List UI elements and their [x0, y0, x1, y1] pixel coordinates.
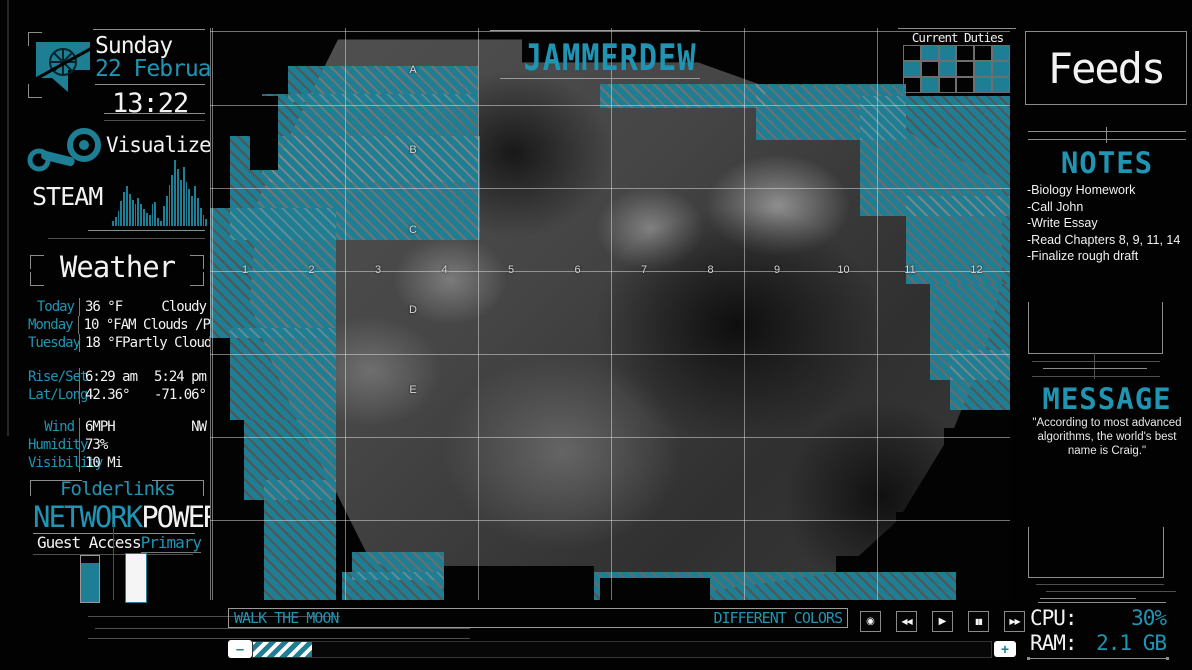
- network-level-fill: [81, 563, 99, 602]
- visualizer-bar: [120, 201, 122, 226]
- duty-cell: [921, 45, 939, 61]
- visualizer-bar: [143, 209, 145, 226]
- bracket: [1106, 127, 1107, 143]
- message-text: "According to most advanced algorithms, …: [1028, 416, 1186, 458]
- condition-value-1: 6MPH: [80, 418, 115, 436]
- notes-title: NOTES: [1028, 146, 1186, 180]
- astro-label: Rise/Set: [28, 368, 80, 386]
- visualizer-bar: [157, 218, 159, 226]
- visualizer-bar: [154, 202, 156, 226]
- divider: [88, 230, 205, 231]
- visualizer-bar: [163, 206, 165, 226]
- duty-cell: [921, 77, 939, 93]
- bracket: [1046, 591, 1176, 592]
- visualizer-bar: [115, 217, 117, 226]
- duty-cell: [992, 61, 1010, 77]
- condition-label: Visibility: [28, 454, 80, 472]
- bracket: [1163, 527, 1164, 577]
- network-power-title: NETWORKPOWER: [33, 500, 219, 534]
- map-col-label: 1: [242, 264, 248, 276]
- map-col-label: 3: [375, 264, 381, 276]
- forecast-day: Monday: [28, 316, 79, 334]
- compass-map-icon[interactable]: [34, 40, 92, 94]
- weather-astro: Rise/Set 6:29 am 5:24 pm Lat/Long 42.36°…: [28, 368, 206, 404]
- ram-row: RAM: 2.1 GB: [1030, 631, 1166, 656]
- bracket: [1028, 577, 1164, 578]
- weather-forecast: Today 36 °F Cloudy Monday 10 °F AM Cloud…: [28, 298, 206, 352]
- clock-time: 13:22: [112, 88, 188, 119]
- visualizer-bar: [152, 204, 154, 226]
- fast-forward-icon: ▶▶: [1009, 617, 1019, 626]
- bracket: [1040, 598, 1136, 599]
- visualizer-bar: [166, 196, 168, 226]
- astro-label: Lat/Long: [28, 386, 80, 404]
- map-col-label: 7: [641, 264, 647, 276]
- visualizer-bar: [123, 192, 125, 226]
- visualizer-bar: [118, 211, 120, 226]
- ram-label: RAM:: [1030, 631, 1077, 656]
- power-level-fill: [126, 554, 146, 602]
- divider: [95, 628, 470, 629]
- screen-edge-line: [7, 0, 9, 436]
- forecast-day: Today: [28, 298, 80, 316]
- map-col-label: 10: [837, 264, 849, 276]
- network-title[interactable]: NETWORK: [33, 500, 141, 534]
- visualizer-bar: [137, 198, 139, 226]
- duty-cell: [921, 61, 939, 77]
- divider: [95, 84, 205, 85]
- map-row-label: B: [409, 144, 416, 156]
- duty-cell: [992, 45, 1010, 61]
- note-item: -Write Essay: [1027, 215, 1189, 232]
- bracket: [1032, 361, 1160, 362]
- note-item: -Biology Homework: [1027, 182, 1189, 199]
- duty-cell: [974, 61, 992, 77]
- map-col-label: 5: [508, 264, 514, 276]
- bracket: [1028, 139, 1186, 140]
- duty-cell: [974, 45, 992, 61]
- visualizer-bar: [180, 180, 182, 226]
- duty-cell: [939, 61, 957, 77]
- duty-cell: [939, 77, 957, 93]
- astro-row: Rise/Set 6:29 am 5:24 pm: [28, 368, 206, 386]
- forecast-desc: Partly Cloudy: [122, 334, 219, 352]
- condition-row: Visibility 10 Mi: [28, 454, 206, 472]
- map-col-label: 9: [774, 264, 780, 276]
- map-row-label: E: [409, 384, 416, 396]
- visualizer-bar: [183, 167, 185, 226]
- duty-cell: [974, 77, 992, 93]
- current-duties-title: Current Duties: [905, 30, 1010, 45]
- divider: [1038, 602, 1166, 603]
- duty-cell: [956, 61, 974, 77]
- visualizer-bar: [146, 213, 148, 226]
- network-power-subtitles: Guest AccessPrimary: [37, 533, 201, 552]
- record-icon: ◉: [866, 616, 875, 627]
- message-title: MESSAGE: [1028, 382, 1186, 416]
- visualizer-bar: [126, 186, 128, 226]
- forecast-row: Today 36 °F Cloudy: [28, 298, 206, 316]
- map-row-label: A: [409, 64, 416, 76]
- visualizer-bar: [174, 160, 176, 226]
- duty-cell: [903, 61, 921, 77]
- fast-forward-button[interactable]: ▶▶: [1004, 611, 1025, 632]
- map-col-label: 2: [308, 264, 314, 276]
- condition-value-1: 10 Mi: [80, 454, 122, 472]
- power-subtitle: Primary: [141, 533, 201, 553]
- visualizer-bar: [186, 182, 188, 226]
- map-col-label: 12: [970, 264, 982, 276]
- cpu-value: 30%: [1131, 606, 1166, 631]
- divider: [104, 113, 205, 114]
- condition-value-2: NW: [115, 418, 206, 436]
- visualizer-bar: [203, 215, 205, 226]
- map-title: JAMMERDEW: [518, 36, 702, 79]
- forecast-temp: 18 °F: [80, 334, 122, 352]
- visualizer-bar: [194, 186, 196, 226]
- bracket: [500, 78, 700, 79]
- bracket: [1028, 353, 1163, 354]
- visualizer-bar: [200, 208, 202, 226]
- astro-value-1: 42.36°: [80, 386, 130, 404]
- note-item: -Call John: [1027, 199, 1189, 216]
- duty-cell: [903, 45, 921, 61]
- steam-icon[interactable]: [27, 128, 103, 178]
- visualizer-bar: [149, 215, 151, 226]
- divider: [104, 120, 205, 121]
- bracket: [28, 84, 42, 98]
- weather-title: Weather: [30, 250, 205, 284]
- notes-list: -Biology Homework-Call John-Write Essay-…: [1027, 182, 1189, 265]
- visualizer-bar: [160, 221, 162, 226]
- steam-label[interactable]: STEAM: [32, 182, 102, 211]
- map-grid-overlay: [210, 28, 1010, 600]
- bracket: [1032, 376, 1160, 377]
- network-level-bar: [80, 555, 100, 603]
- bracket: [490, 30, 700, 31]
- bracket: [1162, 302, 1163, 354]
- astro-value-2: 5:24 pm: [137, 368, 206, 386]
- astro-row: Lat/Long 42.36° -71.06°: [28, 386, 206, 404]
- map-col-label: 6: [574, 264, 580, 276]
- forecast-temp: 36 °F: [80, 298, 122, 316]
- note-item: -Read Chapters 8, 9, 11, 14: [1027, 232, 1189, 249]
- visualizer-bar: [132, 200, 134, 226]
- volume-down-button[interactable]: –: [228, 640, 252, 658]
- power-title[interactable]: POWER: [141, 500, 218, 534]
- note-item: -Finalize rough draft: [1027, 248, 1189, 265]
- rewind-icon: ◀◀: [901, 617, 911, 626]
- network-subtitle: Guest Access: [37, 533, 141, 552]
- cpu-row: CPU: 30%: [1030, 606, 1166, 631]
- map-row-label: D: [409, 304, 417, 316]
- visualizer-title: Visualizer: [106, 133, 222, 157]
- folderlinks-title[interactable]: Folderlinks: [30, 478, 205, 500]
- play-icon: ▶: [939, 616, 947, 627]
- visualizer-bar: [129, 194, 131, 226]
- forecast-temp: 10 °F: [79, 316, 121, 334]
- bracket: [1043, 368, 1147, 369]
- ram-value: 2.1 GB: [1096, 631, 1166, 656]
- weather-conditions: Wind 6MPH NW Humidity 73% Visibility 10 …: [28, 418, 206, 472]
- visualizer-bar: [140, 204, 142, 226]
- visualizer-bar: [205, 219, 207, 226]
- condition-label: Wind: [28, 418, 80, 436]
- feeds-title: Feeds: [1048, 44, 1164, 93]
- power-level-bar: [125, 553, 147, 603]
- audio-visualizer: [112, 160, 207, 226]
- map-col-label: 4: [441, 264, 447, 276]
- rewind-button[interactable]: ◀◀: [896, 611, 917, 632]
- plus-icon: +: [1001, 641, 1009, 657]
- minus-icon: –: [236, 641, 244, 658]
- divider: [1028, 658, 1168, 659]
- forecast-desc: Cloudy: [122, 298, 206, 316]
- pause-icon: ▮▮: [975, 617, 982, 626]
- visualizer-bar: [188, 189, 190, 226]
- visualizer-bar: [197, 198, 199, 226]
- duty-cell: [956, 77, 974, 93]
- cpu-label: CPU:: [1030, 606, 1077, 631]
- divider: [93, 29, 205, 30]
- bracket: [898, 28, 1016, 29]
- forecast-row: Monday 10 °F AM Clouds /PM Sun: [28, 316, 206, 334]
- map-area[interactable]: 123456789101112 ABCDE JAMMERDEW: [210, 28, 1010, 600]
- visualizer-bar: [171, 175, 173, 226]
- pause-button[interactable]: ▮▮: [968, 611, 989, 632]
- map-col-label: 8: [707, 264, 713, 276]
- duty-cell: [992, 77, 1010, 93]
- bracket: [1028, 131, 1186, 132]
- progress-track[interactable]: [252, 641, 992, 658]
- map-col-label: 11: [904, 264, 915, 276]
- condition-value-1: 73%: [80, 436, 107, 454]
- duty-cell: [903, 77, 921, 93]
- visualizer-bar: [177, 169, 179, 226]
- condition-value-2: [122, 454, 206, 472]
- visualizer-bar: [169, 185, 171, 226]
- visualizer-bar: [135, 204, 137, 226]
- now-playing-bar[interactable]: WALK THE MOON DIFFERENT COLORS: [228, 608, 848, 628]
- duty-cell: [939, 45, 957, 61]
- bracket: [28, 32, 42, 46]
- feeds-panel[interactable]: Feeds: [1025, 31, 1187, 105]
- bracket: [1036, 584, 1164, 585]
- forecast-day: Tuesday: [28, 334, 80, 352]
- condition-row: Wind 6MPH NW: [28, 418, 206, 436]
- duty-cell: [956, 45, 974, 61]
- volume-up-button[interactable]: +: [994, 641, 1016, 657]
- divider: [113, 524, 114, 600]
- bracket: [1028, 302, 1029, 354]
- map-row-label: C: [409, 224, 417, 236]
- track-name: DIFFERENT COLORS: [714, 609, 843, 627]
- condition-row: Humidity 73%: [28, 436, 206, 454]
- current-duties-grid: [903, 45, 1010, 93]
- astro-value-2: -71.06°: [130, 386, 206, 404]
- condition-value-2: [107, 436, 206, 454]
- astro-value-1: 6:29 am: [80, 368, 137, 386]
- visualizer-bar: [112, 221, 114, 226]
- system-monitor: CPU: 30% RAM: 2.1 GB: [1030, 606, 1166, 656]
- progress-fill: [253, 642, 312, 657]
- condition-label: Humidity: [28, 436, 80, 454]
- forecast-row: Tuesday 18 °F Partly Cloudy: [28, 334, 206, 352]
- divider: [88, 638, 470, 639]
- visualizer-bar: [191, 196, 193, 226]
- bracket: [1028, 527, 1029, 577]
- divider: [48, 238, 205, 239]
- artist-name: WALK THE MOON: [234, 609, 338, 627]
- play-button[interactable]: ▶: [932, 611, 953, 632]
- record-button[interactable]: ◉: [860, 611, 881, 632]
